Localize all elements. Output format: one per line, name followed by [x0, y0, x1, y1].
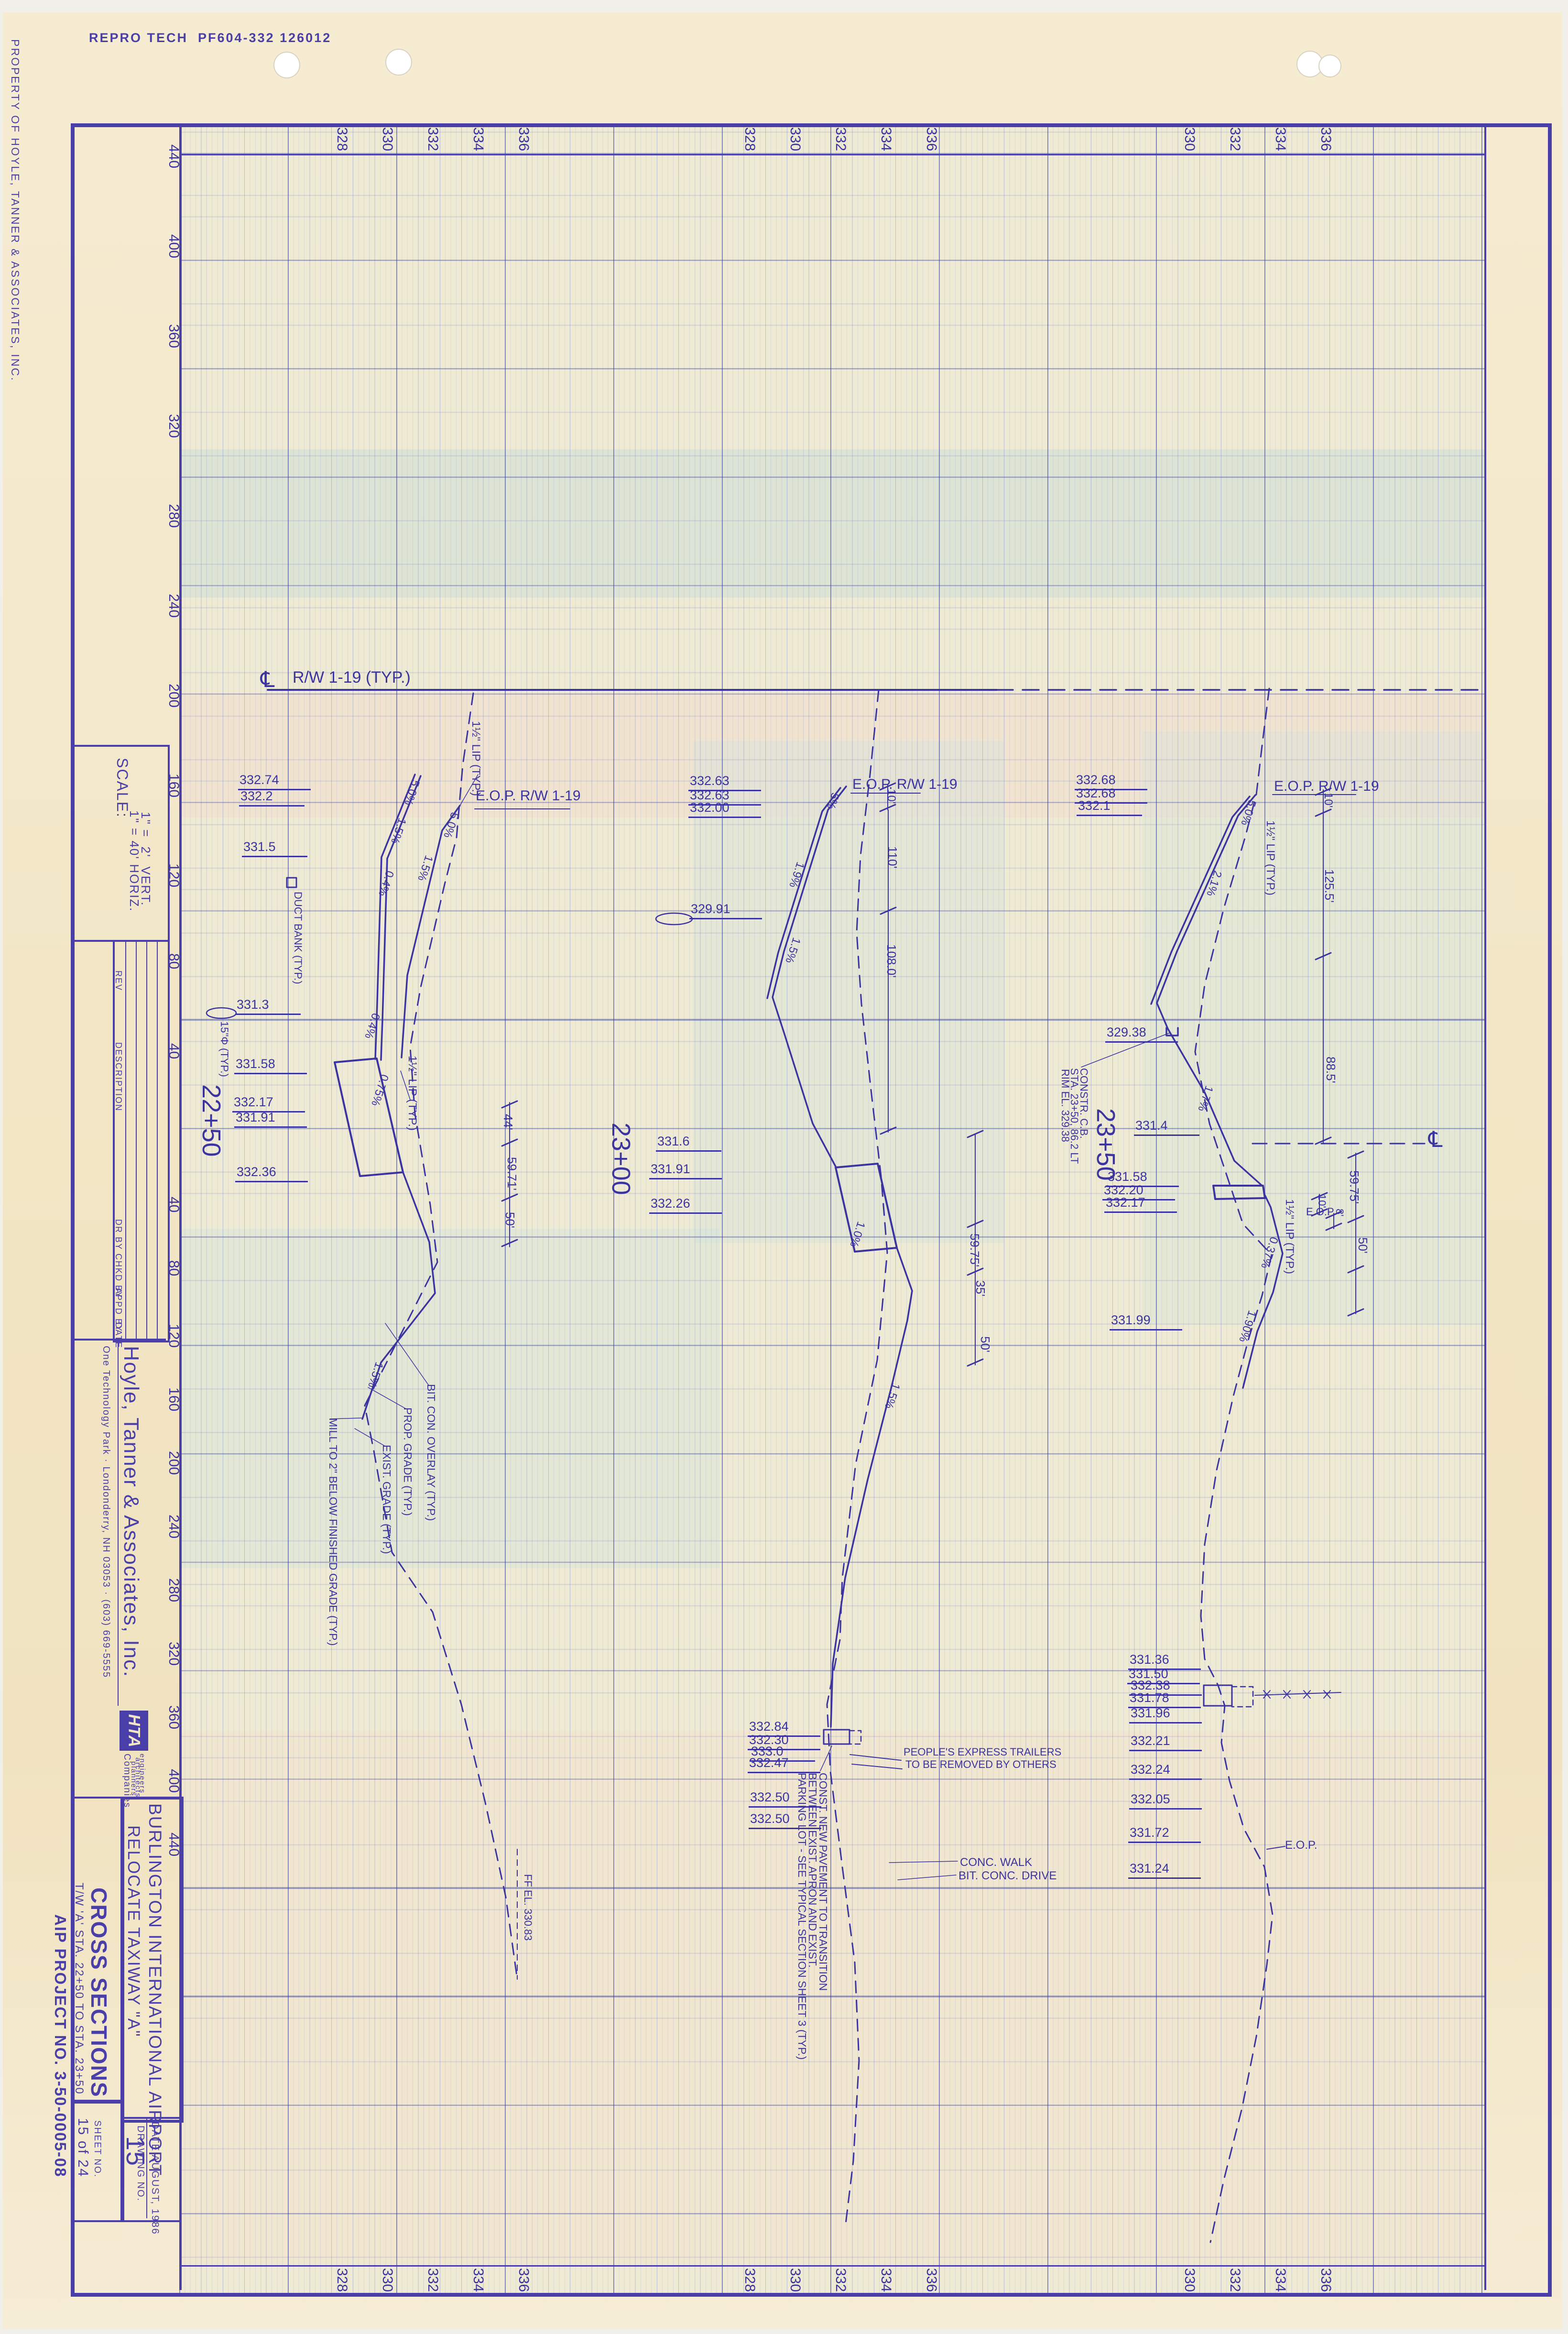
trailer-box [1204, 1685, 1232, 1706]
exist-grade [1195, 688, 1273, 2242]
leader [1081, 1033, 1170, 1067]
pavement-box [335, 1058, 403, 1176]
pavement-box [1213, 1186, 1265, 1199]
leader [401, 1071, 410, 1100]
prop-grade [831, 1248, 912, 1727]
drawing-linework [0, 0, 1568, 2334]
scanned-drawing-sheet: { "stamp": "REPRO TECH PF604-332 126012"… [0, 0, 1568, 2334]
prop-grade [362, 1172, 435, 1419]
leader [889, 1861, 958, 1863]
pipe-symbol [656, 913, 692, 925]
leader [355, 1429, 384, 1446]
trailer-box [824, 1730, 849, 1744]
leader [898, 1875, 956, 1880]
trailer-outline-dashed [1232, 1687, 1253, 1707]
leader [330, 1418, 361, 1419]
overlay-line [767, 788, 840, 998]
duct-bank-symbol [287, 878, 296, 887]
trailer-outline-dashed [849, 1731, 861, 1744]
exist-grade [827, 690, 887, 2228]
leader [368, 1387, 405, 1408]
hatch-line [850, 1755, 901, 1760]
leader [1267, 1846, 1285, 1849]
prop-grade [375, 774, 415, 1059]
exist-grade [365, 693, 517, 1979]
hatch-line [852, 1764, 902, 1769]
pipe-symbol [207, 1008, 236, 1018]
edge-line [402, 806, 460, 1058]
prop-grade [1157, 795, 1262, 1186]
prop-grade [773, 786, 846, 1167]
pavement-box [836, 1164, 897, 1252]
leader [385, 1323, 429, 1385]
